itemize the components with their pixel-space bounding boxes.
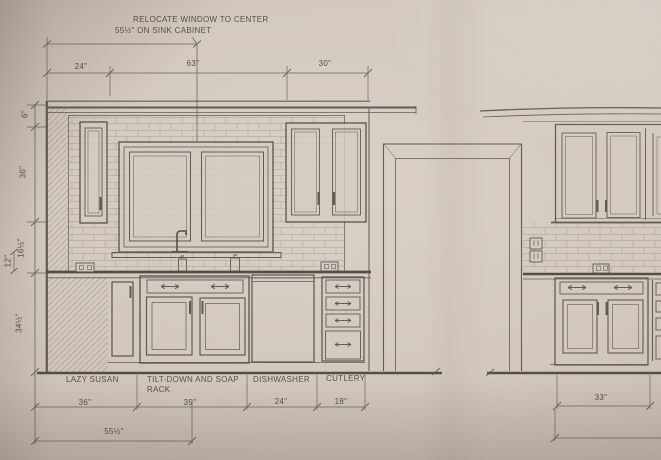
upper-cabinet-left [80,122,107,223]
doorway-opening [384,144,522,371]
label-tilt-down-line2: RACK [147,385,170,394]
dim-bottom-18: 18" [335,397,348,406]
cutlery-drawer-stack [322,277,364,361]
dim-bottom-36: 36" [79,398,92,407]
dim-top-24: 24" [75,62,88,71]
base-cabinet [555,278,648,365]
kitchen-elevation-drawing [0,0,661,460]
dim-bottom-24: 24" [275,397,288,406]
right-dimension-chain [555,406,661,438]
note-line2: 55½" ON SINK CABINET [115,26,211,35]
dim-left-36: 36" [19,166,28,179]
label-cutlery: CUTLERY [326,374,365,383]
dim-left-34half: 34½" [15,313,24,333]
door-handles [598,200,607,212]
window [112,142,281,258]
dim-top-30: 30" [319,59,332,68]
label-dishwasher: DISHWASHER [253,375,310,384]
base-cabinets [112,275,364,363]
dishwasher-front [252,275,314,362]
upper-cabinet-right [286,123,366,222]
crown-line [480,108,661,111]
dim-left-6: 6" [21,110,30,118]
dim-bottom-55half: 55½" [104,427,124,436]
note-line1: RELOCATE WINDOW TO CENTER [133,15,269,24]
blueprint-photo: RELOCATE WINDOW TO CENTER 55½" ON SINK C… [0,0,661,460]
dim-bottom-39: 39" [184,398,197,407]
dim-right-33: 33" [595,393,608,402]
bottom-dimension-chain [35,407,365,441]
dim-left-12: 12" [4,255,13,268]
dim-top-63: 63" [187,59,200,68]
sink-cabinet [140,276,249,363]
label-tilt-down-line1: TILT-DOWN AND SOAP [147,375,239,384]
dim-left-16half: 16½" [17,238,26,258]
label-lazy-susan: LAZY SUSAN [66,375,119,384]
